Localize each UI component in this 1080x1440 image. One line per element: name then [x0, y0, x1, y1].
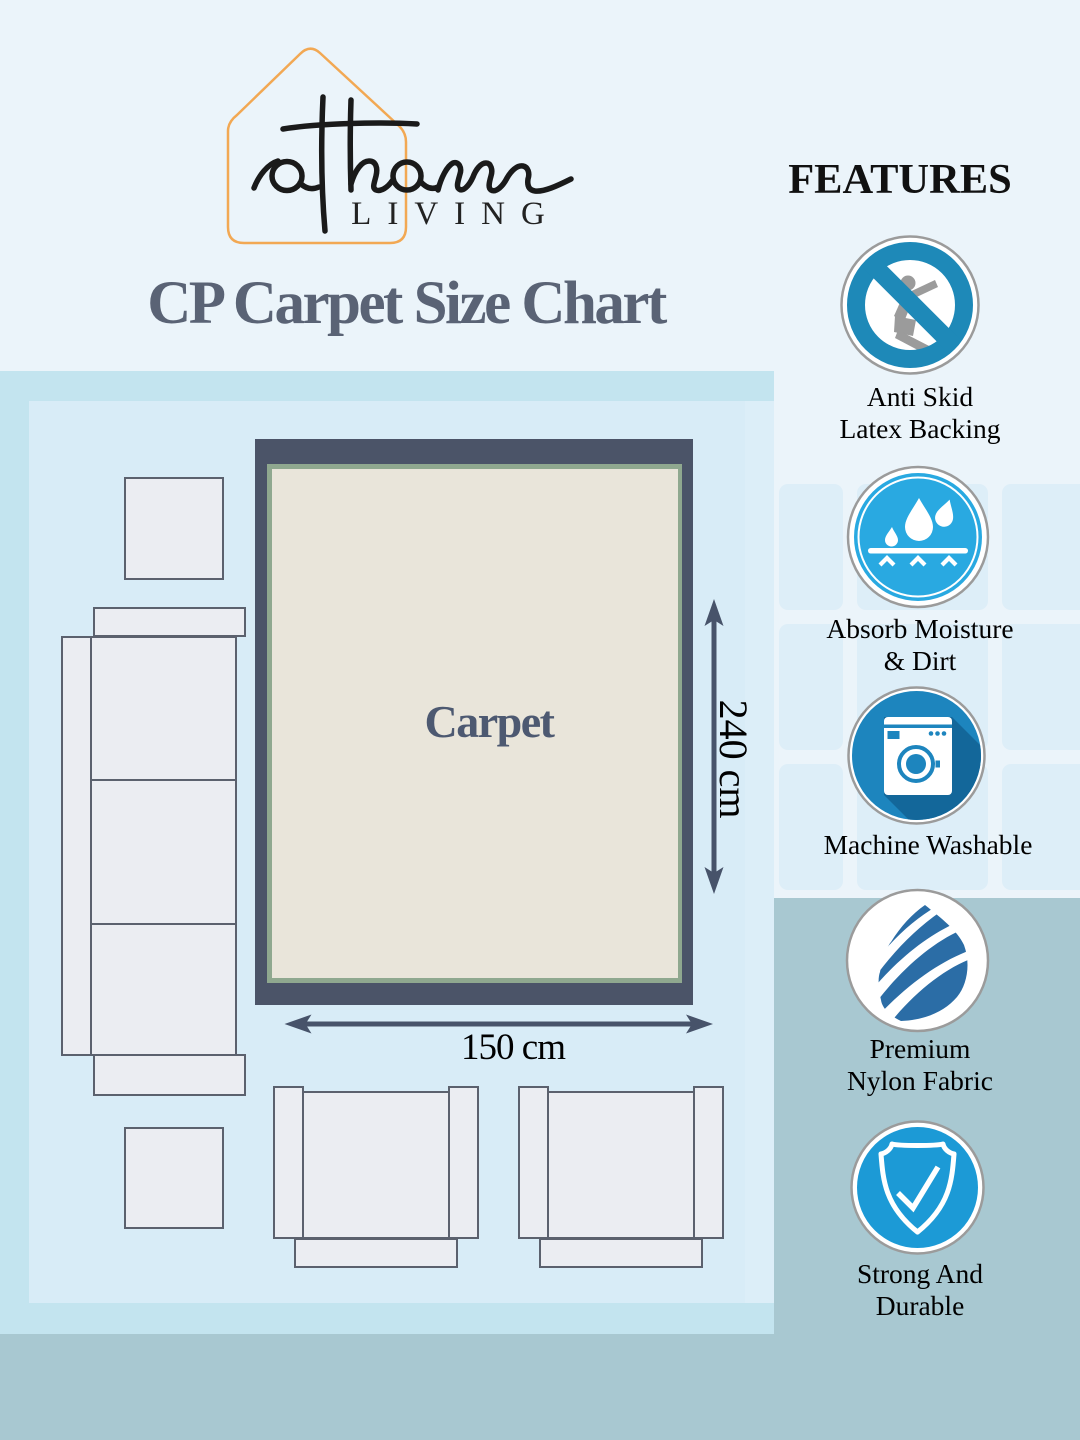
svg-text:LIVING: LIVING	[351, 196, 561, 232]
